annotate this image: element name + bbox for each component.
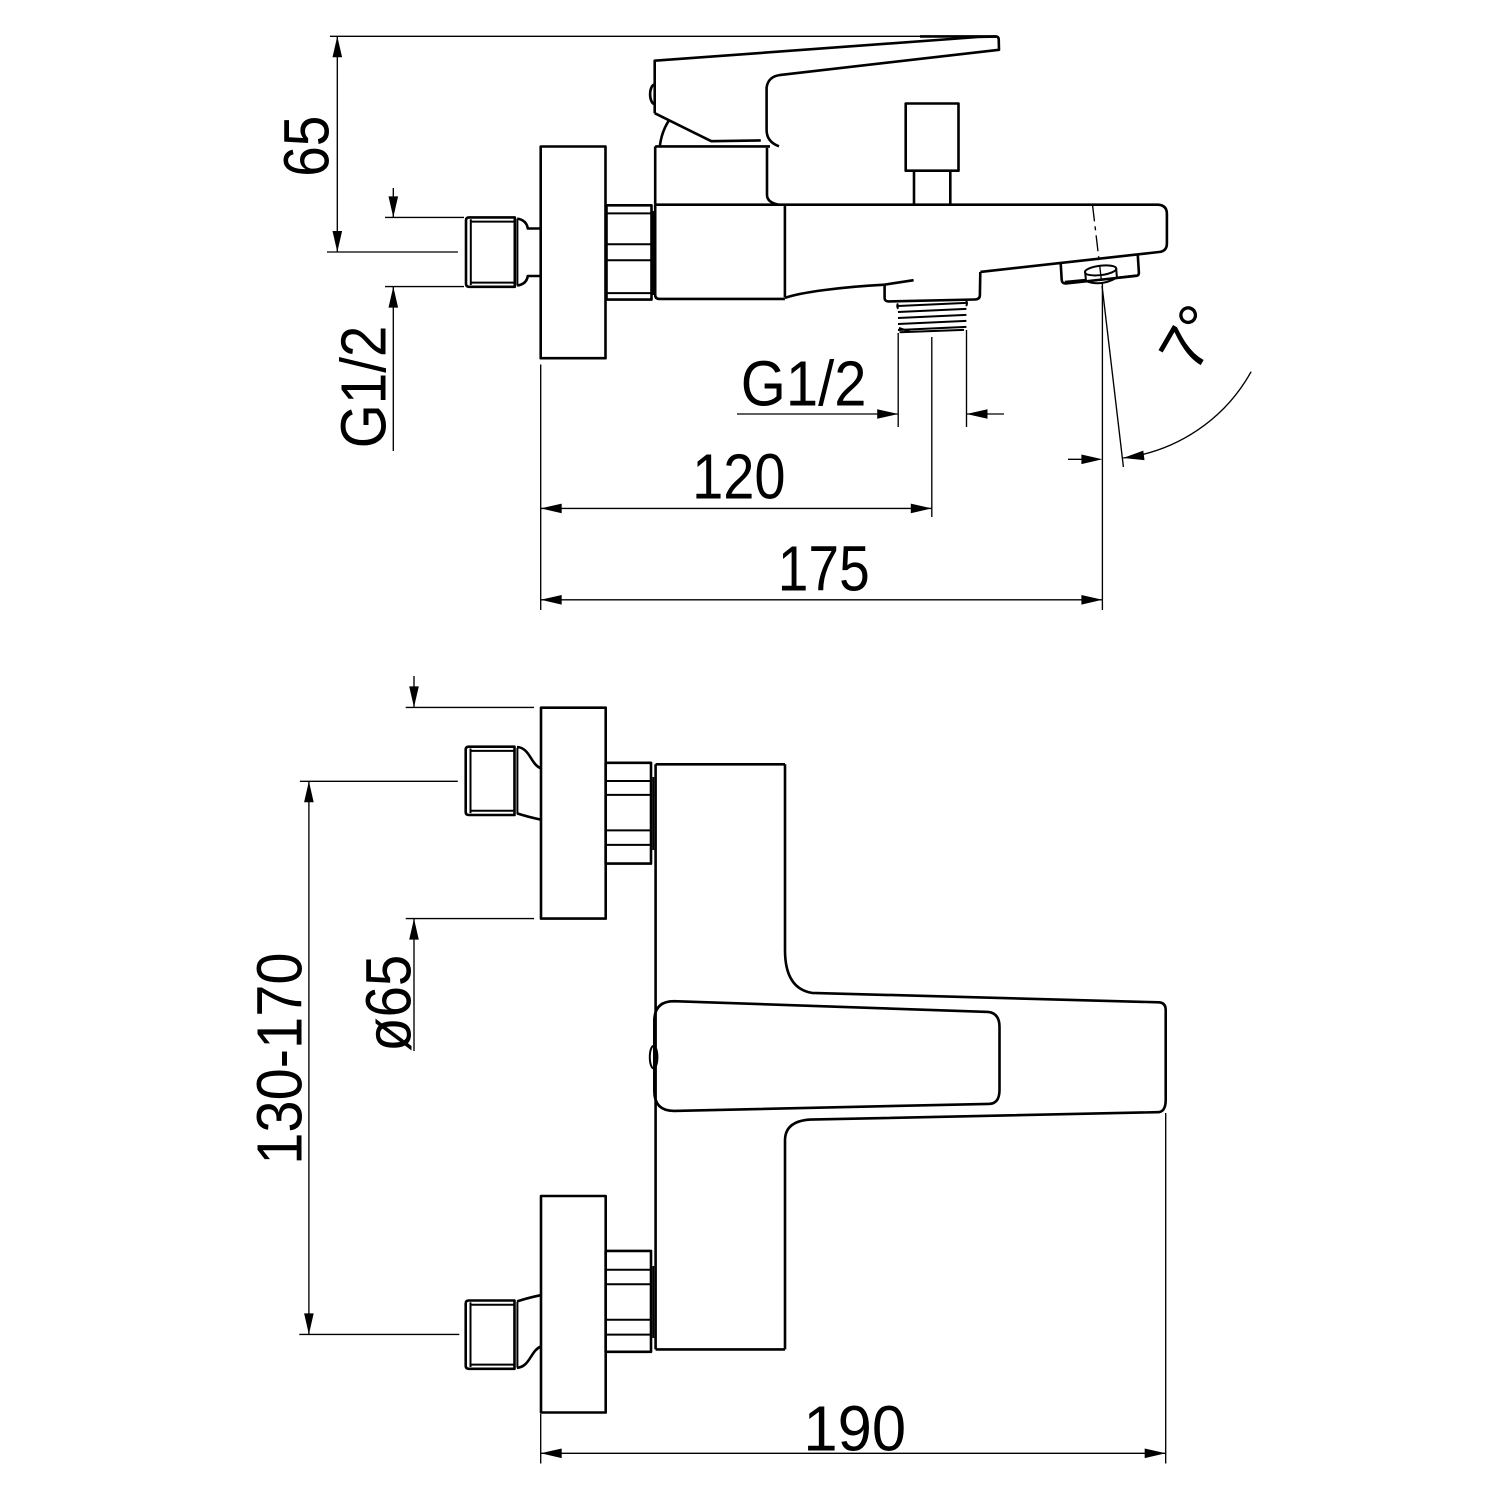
svg-text:G1/2: G1/2 [741, 347, 867, 419]
svg-text:65: 65 [271, 116, 343, 177]
svg-text:130-170: 130-170 [243, 952, 315, 1164]
svg-text:120: 120 [692, 441, 786, 513]
svg-text:G1/2: G1/2 [327, 326, 399, 449]
svg-text:190: 190 [803, 1393, 906, 1465]
svg-text:ø65: ø65 [353, 955, 425, 1052]
svg-text:175: 175 [778, 532, 870, 604]
